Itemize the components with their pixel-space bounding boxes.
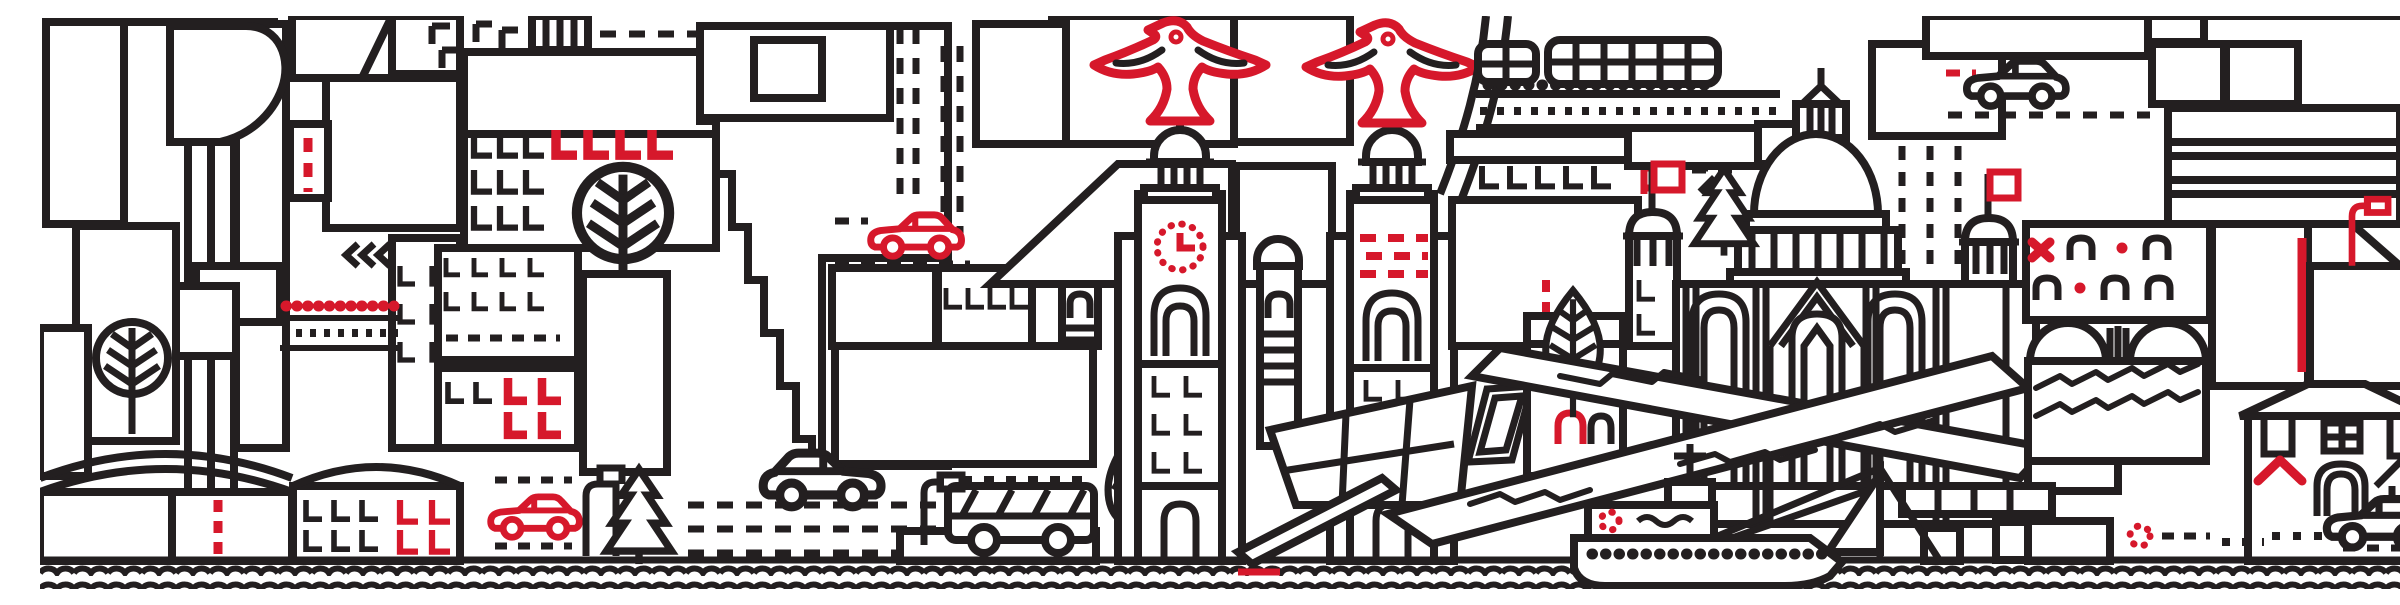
- slanted-window: [1468, 386, 1532, 462]
- red-dot: [2075, 283, 2086, 294]
- house-with-red-l-windows: [293, 467, 460, 561]
- gabled-houses: [2222, 384, 2400, 561]
- pine-tree-dome: [1694, 169, 1754, 256]
- grid-building: [46, 22, 124, 224]
- wide-striped-building: [835, 346, 1093, 464]
- hatched-tower: [583, 274, 667, 472]
- terrace-l-buildings: [438, 248, 578, 448]
- cityscape-illustration: Continuous monochrome line-art cityscape…: [40, 16, 2400, 589]
- dashed-columns: [1902, 146, 1958, 266]
- street-left: [491, 468, 672, 564]
- chevron-marks: [346, 244, 390, 266]
- red-dot: [2117, 243, 2128, 254]
- grid-building: [976, 24, 1066, 144]
- red-sedan-street-left: [491, 497, 580, 537]
- city-bus: [948, 486, 1094, 553]
- white-bay: [290, 124, 328, 198]
- slatted-block: [40, 328, 88, 476]
- ship-hull: [1574, 538, 1842, 586]
- red-lifebuoy-icon: [2130, 526, 2150, 546]
- wave-roof-arena: [2028, 323, 2206, 491]
- striped-building: [326, 78, 460, 228]
- liver-building-clock-tower: [1138, 124, 1222, 561]
- fence-with-red-dot-row: [280, 306, 400, 348]
- l-window-building-right: [2212, 224, 2308, 386]
- red-x-mark: [2032, 242, 2050, 258]
- grid-window-inset: [754, 40, 822, 98]
- red-flag: [1654, 164, 1682, 190]
- middle-turret: [1253, 239, 1303, 446]
- arch-glyph-building: [2026, 224, 2210, 320]
- skyline-left: [40, 16, 460, 561]
- red-flag: [1990, 172, 2018, 198]
- rooftop-bits: [476, 16, 696, 50]
- wavy-waterline: [40, 562, 2400, 589]
- two-car-train: [1478, 40, 1718, 84]
- diagonal-band: [292, 16, 392, 78]
